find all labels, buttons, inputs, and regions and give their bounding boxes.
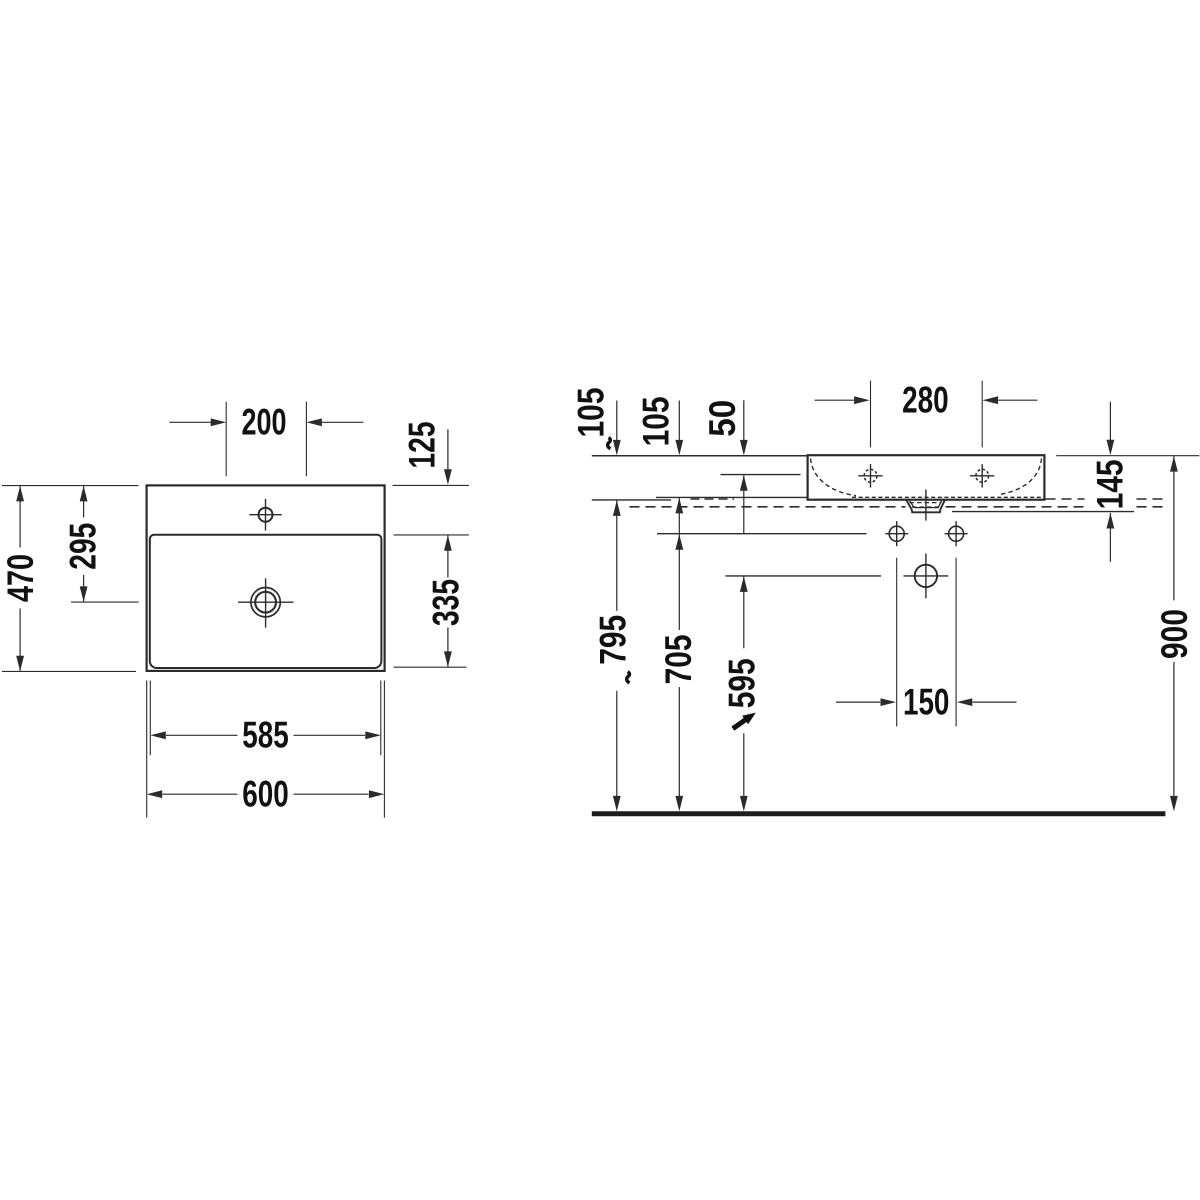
svg-text:145: 145 [1088,459,1130,509]
svg-text:335: 335 [425,579,467,626]
svg-text:295: 295 [62,523,104,570]
svg-text:705: 705 [657,634,699,684]
svg-text:200: 200 [242,401,287,443]
svg-text:900: 900 [1153,609,1195,659]
svg-text:105: 105 [634,396,676,446]
svg-text:795: 795 [592,615,634,665]
svg-text:595: 595 [721,658,763,708]
svg-text:105: 105 [570,388,612,438]
svg-text:585: 585 [242,714,289,756]
svg-text:280: 280 [902,379,949,421]
svg-text:470: 470 [0,554,41,602]
svg-text:125: 125 [400,422,442,469]
svg-text:600: 600 [242,773,289,815]
svg-text:50: 50 [701,400,743,437]
svg-text:150: 150 [903,680,950,722]
